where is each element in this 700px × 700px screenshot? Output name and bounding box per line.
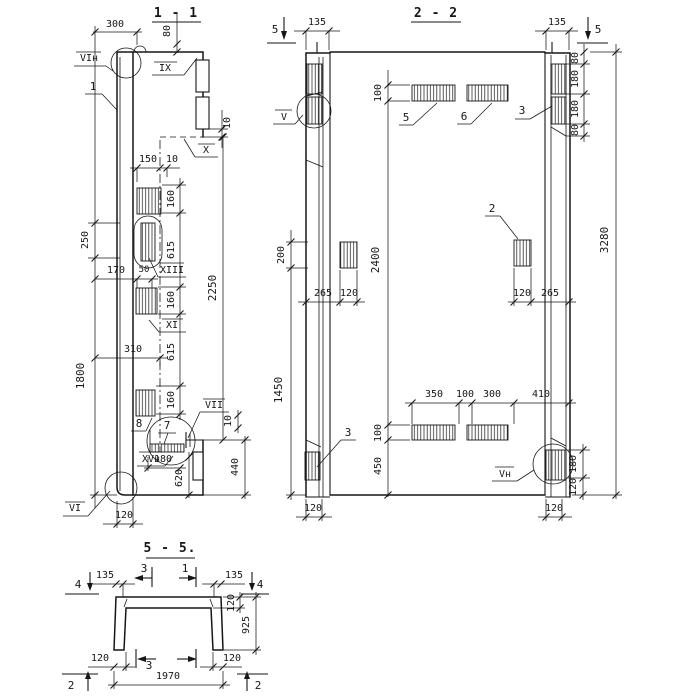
technical-drawing: 1 - 1 [0, 0, 700, 700]
marker-vi-n: VIн [80, 53, 98, 64]
dim-label: 300 [106, 19, 124, 30]
dim-label: 120 [226, 594, 237, 612]
section-5-5-dimensions: 4 135 3 1 135 4 [62, 562, 269, 692]
dim-label: 615 [166, 241, 177, 259]
dim-label: 10 [222, 117, 233, 129]
dim-label: 200 [276, 246, 287, 264]
cut-mark-4-right: 4 [257, 578, 264, 591]
hatch-block [412, 425, 455, 440]
lifting-lug [134, 46, 146, 52]
cut-mark-1-top: 1 [182, 562, 189, 575]
dim-label: 450 [373, 457, 384, 475]
dim-label: 80 [570, 52, 581, 64]
hatch-block [150, 444, 184, 452]
section-5-5-title: 5 - 5. [144, 541, 197, 556]
part-label-8: 8 [136, 417, 143, 430]
hatch-block [467, 425, 508, 440]
dim-label: 615 [166, 343, 177, 361]
hatch-block [467, 85, 508, 101]
dim-label: 265 [314, 288, 332, 299]
section-1-1-title: 1 - 1 [154, 6, 198, 21]
part-label-7: 7 [164, 419, 171, 432]
dim-label: 150 [139, 154, 157, 165]
dim-label: 80 [162, 25, 173, 37]
cut-mark-5-right: 5 [595, 23, 602, 36]
edge-keyway [196, 60, 209, 92]
cut-mark-2-left: 2 [68, 679, 75, 692]
marker-xi: XI [166, 320, 178, 331]
hatch-block [514, 240, 531, 266]
part-label-5: 5 [403, 111, 410, 124]
dim-label: 120 [91, 653, 109, 664]
hatch-block [136, 288, 157, 314]
dim-label: 160 [166, 391, 177, 409]
marker-v-n: Vн [499, 469, 511, 480]
cut-mark-3-top: 3 [141, 562, 148, 575]
hatch-block [307, 97, 322, 124]
hatch-block [546, 450, 566, 480]
section-5-5: 5 - 5. 4 135 3 1 [62, 541, 269, 692]
part-label-2: 2 [489, 202, 496, 215]
dim-label: 100 [373, 424, 384, 442]
section-2-2-title: 2 - 2 [414, 6, 458, 21]
section-5-5-geometry [114, 597, 223, 650]
marker-vii: VII [205, 400, 223, 411]
dim-label: 120 [304, 503, 322, 514]
part-label-1: 1 [90, 80, 97, 93]
dim-label: 410 [532, 389, 550, 400]
dim-label: 1970 [156, 671, 180, 682]
marker-xiii: XIII [160, 265, 184, 276]
hatch-block [137, 188, 161, 214]
detail-circle [105, 472, 137, 504]
dim-label: 160 [166, 291, 177, 309]
dim-label: 100 [373, 84, 384, 102]
dim-label: 160 [166, 190, 177, 208]
marker-x: X [203, 145, 209, 156]
section-2-2-geometry [297, 42, 573, 497]
dim-label: 10 [223, 415, 234, 427]
marker-xv-n: XVн [142, 454, 160, 465]
dim-label: 265 [541, 288, 559, 299]
dim-label: 120 [545, 503, 563, 514]
drawing-sheet: 1 - 1 [0, 0, 700, 700]
dim-label: 180 [568, 455, 579, 473]
dim-label: 135 [96, 570, 114, 581]
dim-label: 3280 [598, 227, 611, 254]
dim-label: 180 [570, 70, 581, 88]
dim-label: 180 [570, 100, 581, 118]
dim-label: 250 [80, 231, 91, 249]
cut-mark-2-right: 2 [255, 679, 262, 692]
part-label-3-right: 3 [519, 104, 526, 117]
dim-label: 170 [107, 265, 125, 276]
dim-label: 135 [225, 570, 243, 581]
marker-vi: VI [69, 503, 81, 514]
part-label-3-left: 3 [345, 426, 352, 439]
dim-label: 2400 [369, 247, 382, 274]
dim-label: 120 [340, 288, 358, 299]
dim-label: 10 [166, 154, 178, 165]
hatch-block [551, 64, 566, 94]
dim-label: 1800 [74, 363, 87, 390]
dim-label: 50 [139, 265, 150, 275]
marker-ix: IX [159, 63, 171, 74]
dim-label: 100 [456, 389, 474, 400]
cut-mark-5-left: 5 [272, 23, 279, 36]
dim-label: 620 [174, 469, 185, 487]
hatch-block [307, 64, 322, 94]
dim-label: 925 [241, 616, 252, 634]
edge-keyway [193, 452, 203, 480]
dim-label: 310 [124, 344, 142, 355]
hatch-block [340, 242, 357, 268]
cut-mark-3-bottom: 3 [146, 659, 153, 672]
dim-label: 135 [308, 17, 326, 28]
hatch-block [412, 85, 455, 101]
dim-label: 440 [230, 458, 241, 476]
hatch-block [136, 390, 155, 416]
marker-v: V [281, 112, 287, 123]
dim-label: 350 [425, 389, 443, 400]
cut-mark-4-left: 4 [75, 578, 82, 591]
dim-label: 120 [115, 510, 133, 521]
dim-label: 120 [513, 288, 531, 299]
dim-label: 1450 [272, 377, 285, 404]
dim-label: 120 [223, 653, 241, 664]
section-1-1: 1 - 1 [63, 6, 251, 528]
dim-label: 80 [570, 124, 581, 136]
hatch-block [141, 223, 155, 261]
hatch-block [551, 97, 566, 124]
dim-label: 2250 [206, 275, 219, 302]
dim-label: 300 [483, 389, 501, 400]
dim-label: 135 [548, 17, 566, 28]
dim-label: 120 [568, 478, 579, 496]
part-label-6: 6 [461, 110, 468, 123]
edge-keyway [196, 97, 209, 129]
section-2-2: 2 - 2 [267, 6, 622, 521]
